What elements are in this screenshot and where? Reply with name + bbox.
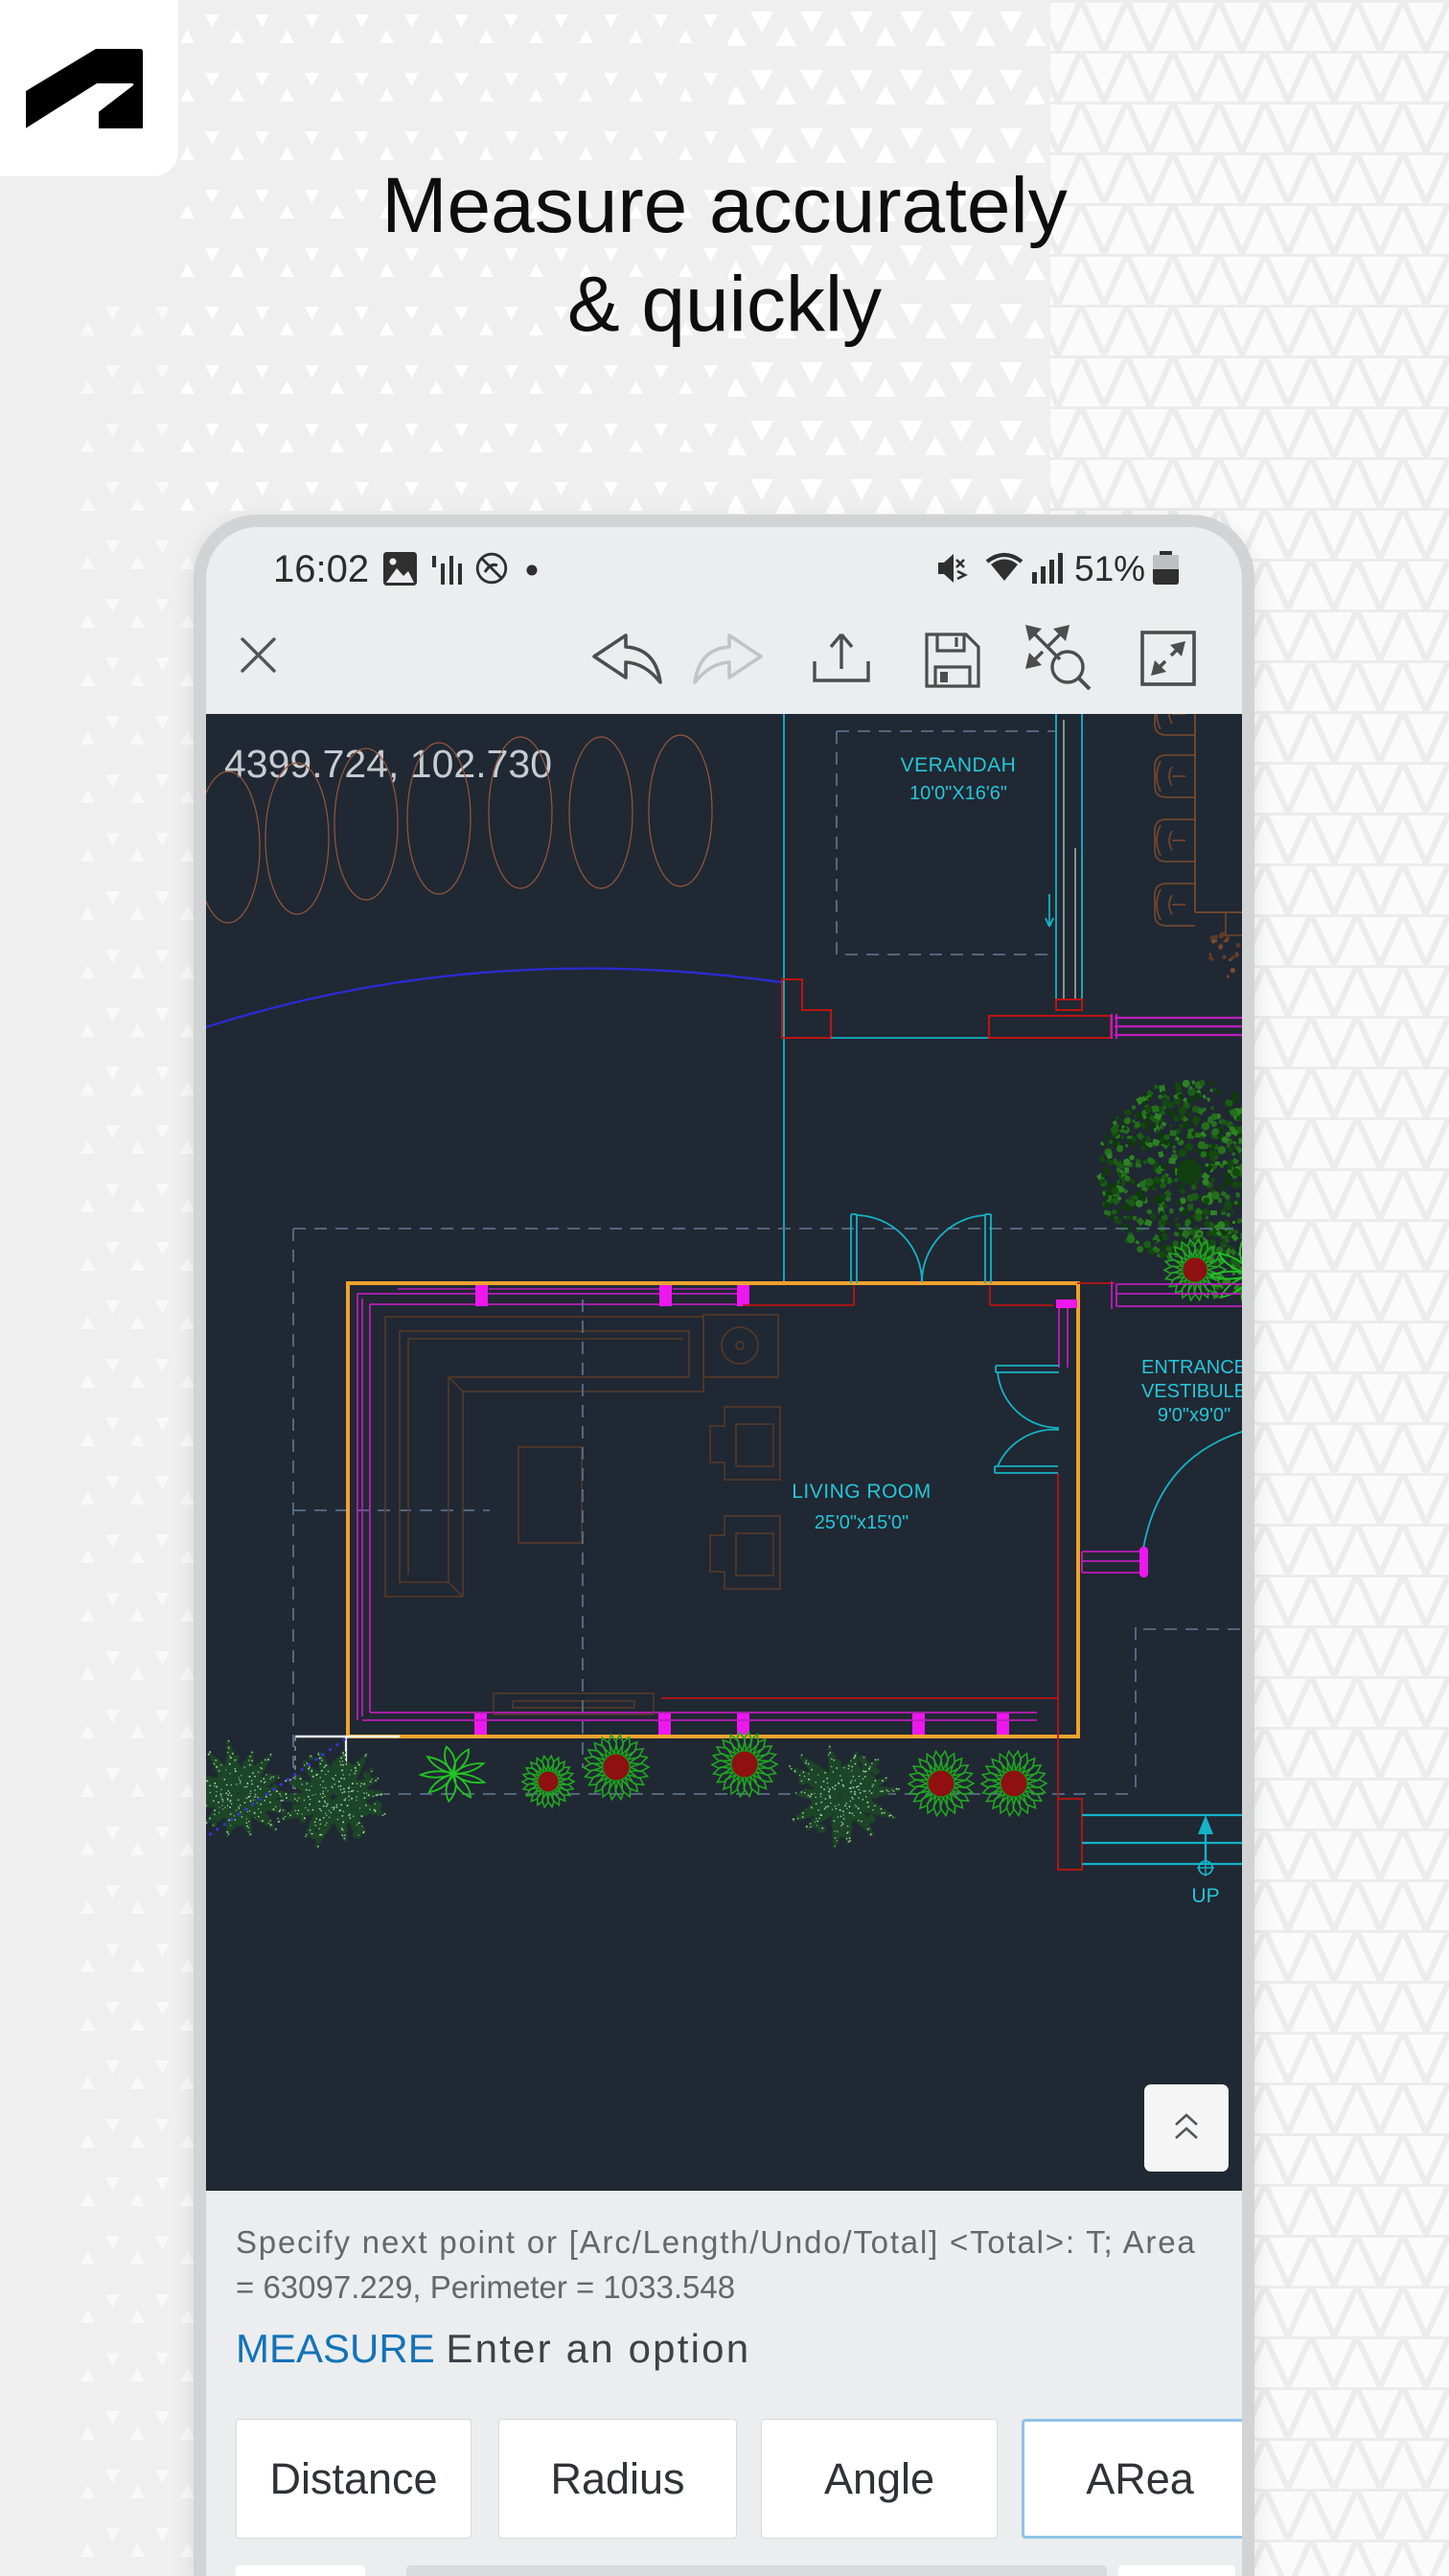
svg-text:9'0"x9'0": 9'0"x9'0" [1158, 1405, 1230, 1426]
svg-text:4399.724, 102.730: 4399.724, 102.730 [224, 742, 552, 786]
svg-text:51%: 51% [1074, 549, 1145, 588]
svg-text:VESTIBULE: VESTIBULE [1141, 1381, 1242, 1402]
svg-text:UP: UP [1191, 1885, 1219, 1907]
svg-text:ENTRANCE: ENTRANCE [1141, 1357, 1242, 1378]
svg-text:LIVING ROOM: LIVING ROOM [792, 1481, 931, 1503]
svg-text:25'0"x15'0": 25'0"x15'0" [815, 1512, 909, 1533]
svg-text:16:02: 16:02 [273, 548, 369, 590]
svg-text:10'0"X16'6": 10'0"X16'6" [909, 783, 1007, 804]
svg-text:VERANDAH: VERANDAH [901, 754, 1017, 776]
